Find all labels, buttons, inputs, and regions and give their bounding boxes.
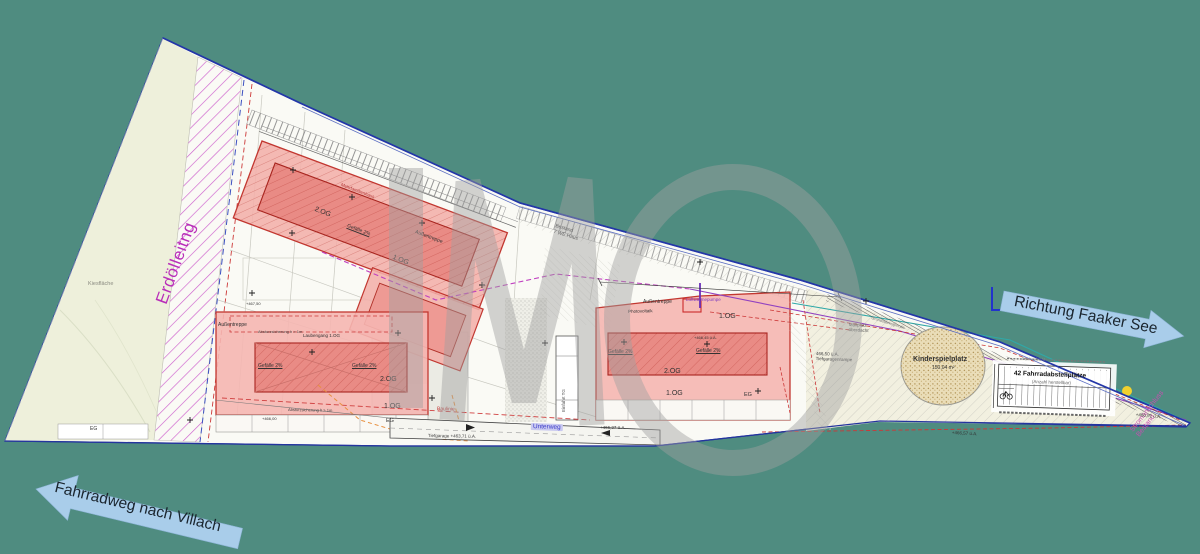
texture-lines xyxy=(218,95,840,440)
elevation-label: +466,27 ü.A. xyxy=(600,425,626,430)
building-b-slope-label: Gefälle 2% xyxy=(352,364,376,370)
tiefgarage-label: Tiefgarage +463,71 ü.A. xyxy=(428,433,476,439)
muellplatz-label: Müllplatz überdacht xyxy=(848,322,869,333)
road-strip xyxy=(58,400,660,445)
building-b-slope-label: Gefälle 2% xyxy=(258,364,282,370)
parking-strip xyxy=(516,206,807,304)
power-connection-marker xyxy=(1122,386,1132,396)
bike-parking-title: 42 Fahrradabstellplätze xyxy=(1014,370,1086,380)
watermark-letter-m xyxy=(452,180,592,425)
dachaufsicht-label: Dachaufsicht xyxy=(1022,357,1045,362)
eg-label: EG xyxy=(90,427,97,433)
arrow-faaker-see xyxy=(998,282,1187,355)
building-c-floor-label: 2.OG xyxy=(664,368,681,376)
building-c-floor-label: 1.OG xyxy=(666,390,683,398)
bicycle-icon xyxy=(1000,391,1012,399)
kiesflaeche-label: Kiesfläche xyxy=(88,281,113,287)
photovoltaik-label: Photovoltaik xyxy=(628,308,653,314)
meadow-area xyxy=(5,38,198,441)
pipeline-hatch-band xyxy=(154,57,242,442)
building-c-floor-label: EG xyxy=(744,392,752,398)
building-b-laubengang-label: Laubengang 1.OG xyxy=(303,333,340,338)
building-a-floor-label: 1.OG xyxy=(391,254,409,267)
baulinie-label: Baulinie xyxy=(437,407,455,413)
watermark-letter-o xyxy=(617,177,849,463)
labels-layer: Erdölleitng Kiesfläche Richtung Faaker S… xyxy=(0,0,1200,554)
building-c xyxy=(0,0,850,430)
building-a xyxy=(205,126,518,372)
building-b-stair-label: Außentreppe xyxy=(218,323,247,329)
bestand-haus-label: Bestand 7 WE Haus xyxy=(553,224,580,242)
building-c-slope-label: Gefälle 2% xyxy=(696,349,720,355)
building-a-floor-label: 2.OG xyxy=(313,206,331,219)
elevation-label: +466,45 ü.A. xyxy=(694,336,717,340)
boundary-wall-band xyxy=(826,293,1188,427)
playground-circle xyxy=(901,327,985,405)
arrow-villach xyxy=(31,467,246,554)
elevation-label: +466,91 ü.A. xyxy=(1136,412,1162,419)
garage-entry-box xyxy=(556,336,578,420)
building-a-stair-label: Außentreppe xyxy=(414,230,443,246)
building-a-slope-label: Gefälle 2% xyxy=(346,224,371,238)
building-b-absturz-label: Absturzsicherung h > 1m xyxy=(258,330,302,334)
playground-label: Kinderspielplatz xyxy=(913,356,967,364)
bike-parking-table xyxy=(991,358,1117,416)
building-c-slope-label: Gefälle 2% xyxy=(608,350,632,356)
plan-drawing xyxy=(0,0,1200,554)
building-b-floor-label: 2.OG xyxy=(380,376,397,384)
luftwaermepumpe-label: Luftwärmepumpe xyxy=(686,297,721,302)
elevation-label: +466,00 xyxy=(262,417,277,421)
building-b-floor-label: 1.OG xyxy=(384,403,401,411)
watermark xyxy=(0,0,1200,554)
playground-area-label: 150,04 m² xyxy=(932,366,955,372)
building-c-stair-label: Außentreppe xyxy=(643,300,672,306)
arrow-right-label: Richtung Faaker See xyxy=(1013,293,1159,338)
street-name-label: Unterweg xyxy=(531,423,563,431)
bike-parking-subtitle: (Anzahl herstellbar) xyxy=(1032,379,1071,385)
tg-rampe-label: 466,50 ü.A. Tiefgaragenrampe xyxy=(816,351,853,362)
site-outline xyxy=(5,38,1190,446)
erdoelleitung-label: Erdölleitng xyxy=(152,219,199,306)
courtyard-slab xyxy=(372,332,468,428)
mehrfamilienhaus-label: Mehrfamilienhaus xyxy=(340,182,375,199)
stromanschluss-label: Stromanschluss Bestand xyxy=(1129,390,1172,439)
building-c-floor-label: 1.OG xyxy=(719,313,736,321)
building-b xyxy=(216,312,428,432)
einfahrt-tg-label: Einfahrt TG xyxy=(561,389,566,412)
parking-strip xyxy=(247,110,506,221)
building-b-floor-label: EG xyxy=(386,418,394,424)
elevation-label: +467,50 xyxy=(246,302,261,306)
building-b-absturz-label: Absturzsicherung h > 1m xyxy=(288,408,332,413)
elevation-label: +466,57 ü.A. xyxy=(952,430,978,436)
grenze-label: Grundstücksgrenze xyxy=(871,316,905,330)
site-plan-canvas: Erdölleitng Kiesfläche Richtung Faaker S… xyxy=(0,0,1200,554)
arrow-left-label: Fahrradweg nach Villach xyxy=(53,479,223,536)
survey-crosses xyxy=(187,167,869,423)
